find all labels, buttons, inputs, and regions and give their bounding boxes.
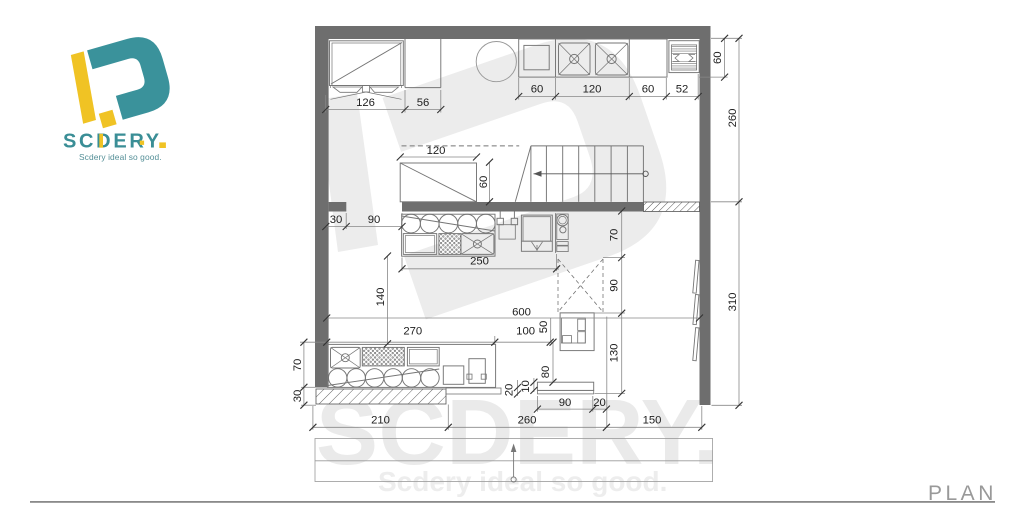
- svg-text:80: 80: [540, 366, 552, 379]
- svg-text:60: 60: [478, 176, 490, 189]
- svg-text:50: 50: [538, 321, 550, 334]
- svg-text:60: 60: [531, 84, 544, 96]
- svg-text:250: 250: [470, 256, 489, 268]
- svg-text:90: 90: [559, 397, 572, 409]
- svg-text:60: 60: [712, 51, 724, 64]
- svg-text:30: 30: [330, 214, 343, 226]
- svg-text:126: 126: [356, 97, 375, 109]
- svg-text:310: 310: [727, 293, 739, 312]
- svg-text:Scdery ideal so good.: Scdery ideal so good.: [79, 152, 162, 162]
- svg-text:56: 56: [417, 97, 430, 109]
- svg-text:90: 90: [368, 214, 381, 226]
- svg-text:150: 150: [643, 415, 662, 427]
- svg-text:210: 210: [371, 415, 390, 427]
- svg-text:20: 20: [593, 397, 606, 409]
- svg-text:90: 90: [609, 279, 621, 292]
- svg-text:60: 60: [642, 84, 655, 96]
- svg-text:30: 30: [292, 390, 304, 403]
- svg-text:10: 10: [520, 380, 532, 393]
- svg-text:270: 270: [403, 326, 422, 338]
- svg-text:PLAN: PLAN: [928, 482, 997, 505]
- svg-text:70: 70: [292, 359, 304, 372]
- svg-text:120: 120: [427, 145, 446, 157]
- svg-text:140: 140: [375, 288, 387, 307]
- svg-text:100: 100: [516, 326, 535, 338]
- svg-text:52: 52: [676, 84, 689, 96]
- svg-text:600: 600: [512, 307, 531, 319]
- svg-text:SCDERY.: SCDERY.: [63, 131, 168, 153]
- svg-text:260: 260: [727, 109, 739, 128]
- svg-text:20: 20: [504, 384, 516, 397]
- svg-text:260: 260: [518, 415, 537, 427]
- svg-text:120: 120: [583, 84, 602, 96]
- svg-text:130: 130: [609, 344, 621, 363]
- svg-text:70: 70: [609, 229, 621, 242]
